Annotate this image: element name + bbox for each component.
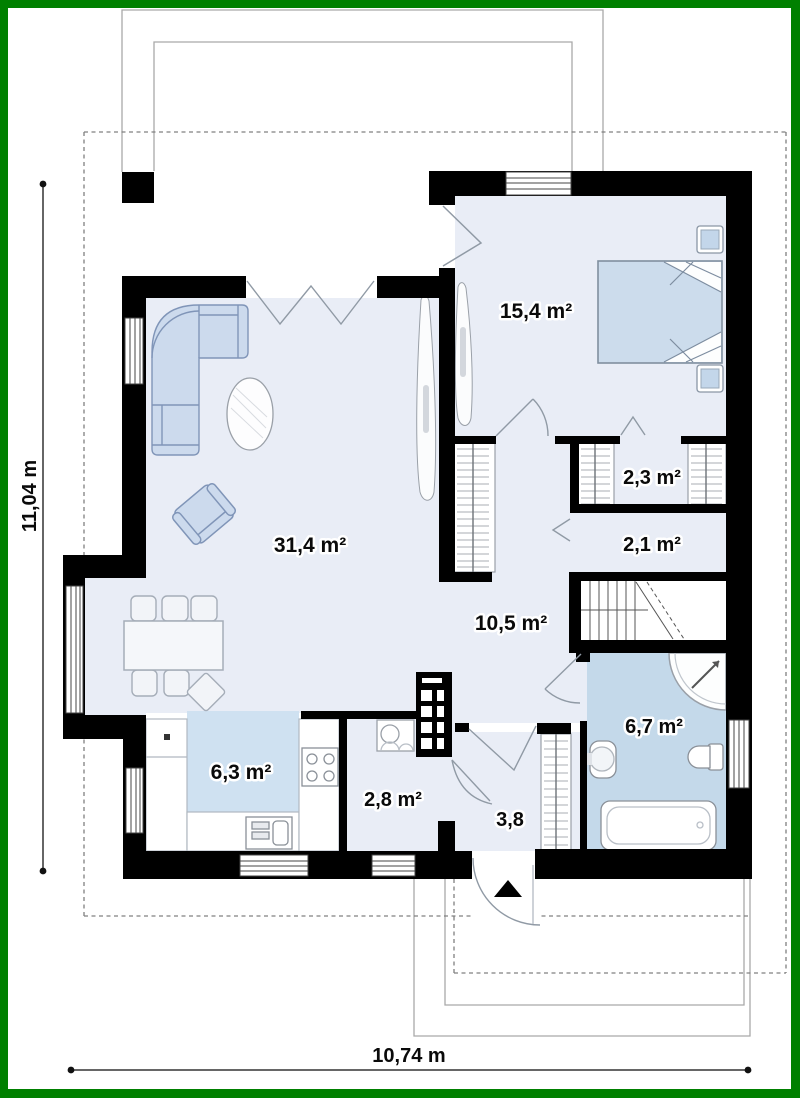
svg-text:11,04 m: 11,04 m <box>19 460 41 532</box>
svg-text:2,8 m²: 2,8 m² <box>364 789 422 811</box>
svg-text:15,4 m²: 15,4 m² <box>500 300 572 323</box>
svg-text:2,3 m²: 2,3 m² <box>623 467 681 489</box>
svg-text:2,1 m²: 2,1 m² <box>623 534 681 556</box>
svg-text:10,74 m: 10,74 m <box>372 1045 445 1067</box>
svg-text:10,5 m²: 10,5 m² <box>475 612 547 635</box>
svg-text:31,4 m²: 31,4 m² <box>274 534 346 557</box>
svg-text:3,8: 3,8 <box>496 809 524 831</box>
svg-text:6,7 m²: 6,7 m² <box>625 716 683 738</box>
svg-text:6,3 m²: 6,3 m² <box>211 761 272 784</box>
